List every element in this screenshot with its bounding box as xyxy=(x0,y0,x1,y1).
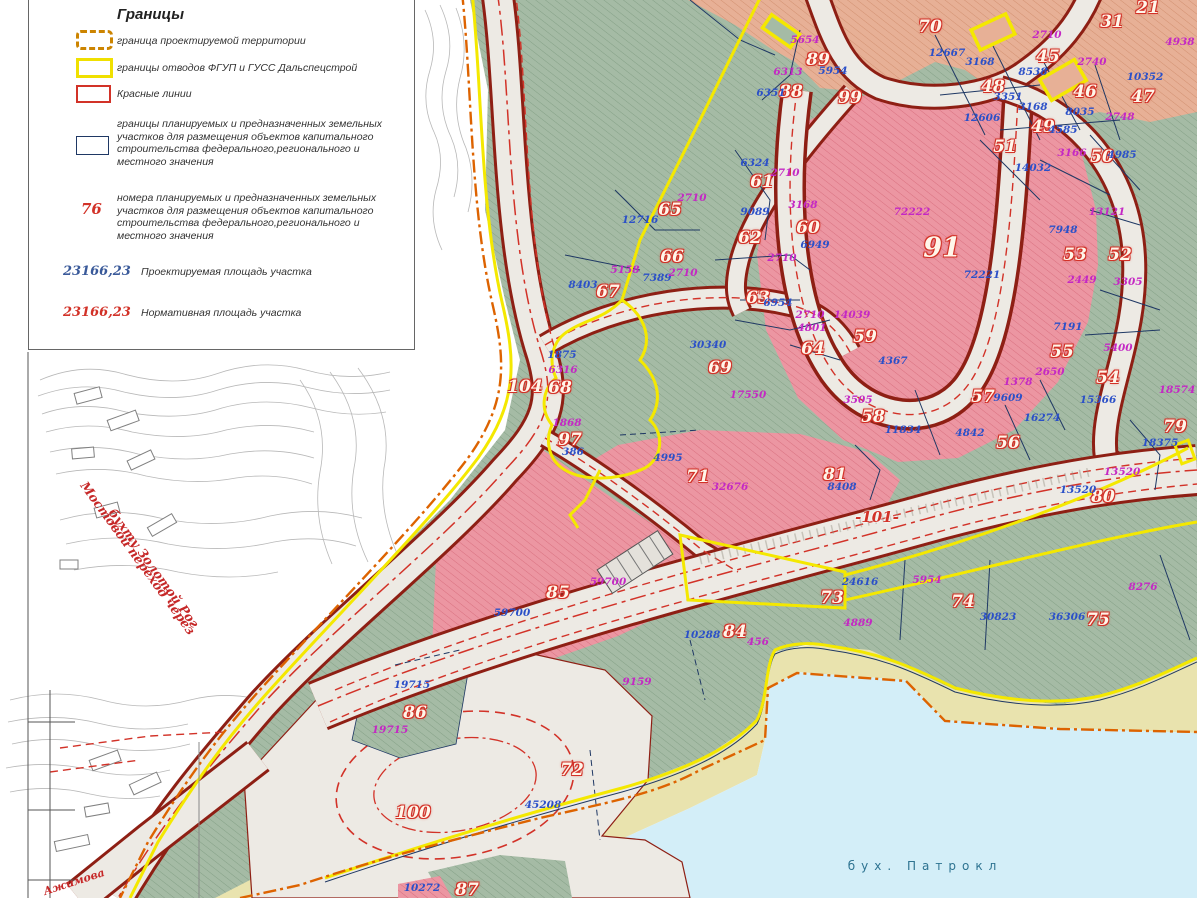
legend-item-label: границы планируемых и предназначенных зе… xyxy=(117,118,408,168)
legend-item-label: граница проектируемой территории xyxy=(117,35,408,48)
legend-normative-area-sample: 23166,23 xyxy=(63,305,131,320)
legend-parcel-number-sample: 76 xyxy=(81,200,102,218)
legend-swatch-planned-parcels-icon xyxy=(76,136,109,155)
legend: Границы граница проектируемой территории… xyxy=(28,0,415,350)
legend-project-area-sample: 23166,23 xyxy=(63,264,131,279)
legend-item-label: границы отводов ФГУП и ГУСС Дальспецстро… xyxy=(117,62,408,75)
legend-item-label: Красные линии xyxy=(117,88,408,101)
planning-map-sheet: 2131454647484950515253545556575859606162… xyxy=(0,0,1197,898)
legend-item-label: Проектируемая площадь участка xyxy=(141,266,408,279)
legend-swatch-red-lines-icon xyxy=(76,85,111,103)
legend-item-label: номера планируемых и предназначенных зем… xyxy=(117,192,408,242)
legend-item-label: Нормативная площадь участка xyxy=(141,307,408,320)
legend-title: Границы xyxy=(117,6,184,23)
legend-swatch-project-boundary-icon xyxy=(76,30,113,50)
legend-swatch-allotment-boundary-icon xyxy=(76,58,113,78)
